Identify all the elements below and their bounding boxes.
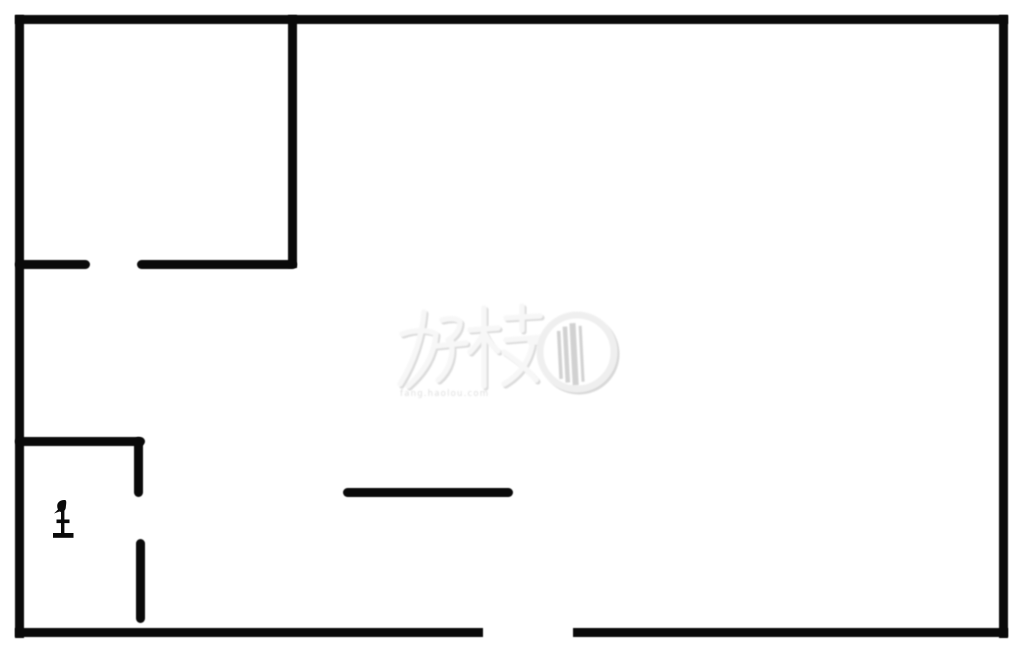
wall-room-topleft-right-wall (288, 15, 297, 268)
watermark-glyphs (400, 306, 544, 386)
watermark-glyphs-shadow (402, 308, 546, 388)
watermark-circle-logo (540, 315, 616, 391)
wall-outer-bottom-right (573, 628, 1008, 637)
wall-room-bottomleft-top-wall (15, 437, 145, 446)
floor-plan: 好楼 (0, 0, 1020, 652)
wall-outer-left (15, 15, 24, 638)
wall-outer-top (15, 15, 1008, 24)
watermark-url-text: fang.haolou.com (400, 389, 489, 399)
wall-room-topleft-bottom-wall-left (15, 260, 90, 269)
wall-room-bottomleft-right-wall-lower (136, 539, 145, 623)
building-bars-icon (557, 323, 585, 386)
watermark: fang.haolou.com (386, 296, 638, 410)
toilet-icon (50, 499, 77, 542)
wall-outer-right (999, 15, 1008, 638)
wall-outer-bottom-left (15, 628, 483, 637)
wall-room-topleft-bottom-wall-right (137, 260, 297, 269)
wall-room-bottomleft-right-wall-upper (134, 437, 143, 497)
wall-partition-middle (343, 488, 513, 497)
